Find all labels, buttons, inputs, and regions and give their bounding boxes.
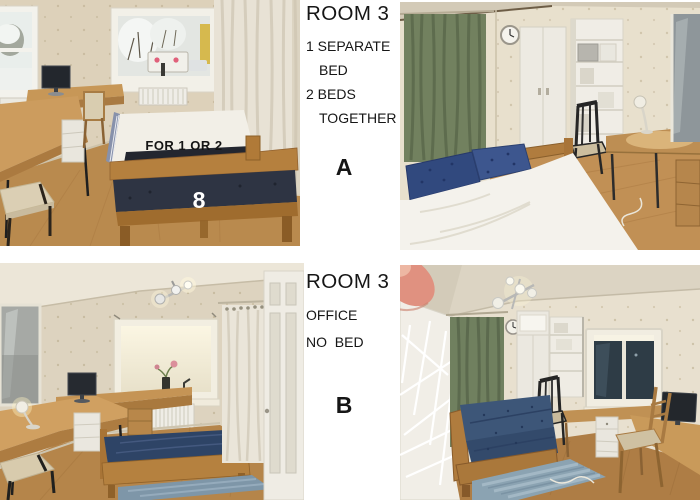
caption-line-no-bed: NO BED [306,329,396,356]
wardrobe [520,27,566,151]
bed-number-label: 8 [193,187,206,213]
yellow-house [200,24,210,64]
room-title-bottom: ROOM 3 [306,269,396,295]
option-label-a: A [306,154,382,181]
wall-clock [501,26,519,44]
window-latch [161,63,165,78]
photo-room-a-desk-view [400,2,700,250]
door-handle [265,409,269,413]
drawer-pedestal [676,160,700,226]
window [584,329,664,413]
caption-line-1: 1 SEPARATE [306,34,396,58]
option-label-b: B [306,392,382,419]
glass-door [264,271,304,500]
caption-line-4: TOGETHER [306,106,396,130]
open-shelves [550,317,583,397]
room-b-sofa-scene [400,265,700,500]
caption-room-b: ROOM 3 OFFICE NO BED B [306,269,396,419]
white-pedestal [596,417,618,457]
radiator [139,88,187,105]
room-b-office-scene [0,263,304,500]
caption-room-a: ROOM 3 1 SEPARATE BED 2 BEDS TOGETHER A [306,1,396,181]
white-pedestal [74,413,100,451]
caption-line-2: BED [306,58,396,82]
eyelet-curtain [218,301,270,463]
white-cabinet [517,311,549,399]
room-title-top: ROOM 3 [306,1,396,27]
photo-room-a-bed-view: FOR 1 OR 2 8 [0,0,300,246]
caption-lines-bottom: OFFICE NO BED [306,302,396,356]
bed-capacity-label: FOR 1 OR 2 [145,138,222,153]
drawer-unit [62,120,84,162]
caption-line-3: 2 BEDS [306,82,396,106]
mirror [672,14,700,142]
trailer-with-bows [148,52,188,72]
caption-line-office: OFFICE [306,302,396,329]
green-curtain [400,11,494,162]
caption-lines-top: 1 SEPARATE BED 2 BEDS TOGETHER [306,34,396,130]
photo-collage: FOR 1 OR 2 8 [0,0,700,500]
car [189,60,207,71]
room-a-desk-scene [400,2,700,250]
photo-room-b-sofa-view [400,265,700,500]
photo-room-b-office-view [0,263,304,500]
wall-mirror [0,305,40,405]
room-a-bed-scene: FOR 1 OR 2 8 [0,0,300,246]
center-window [111,8,217,92]
